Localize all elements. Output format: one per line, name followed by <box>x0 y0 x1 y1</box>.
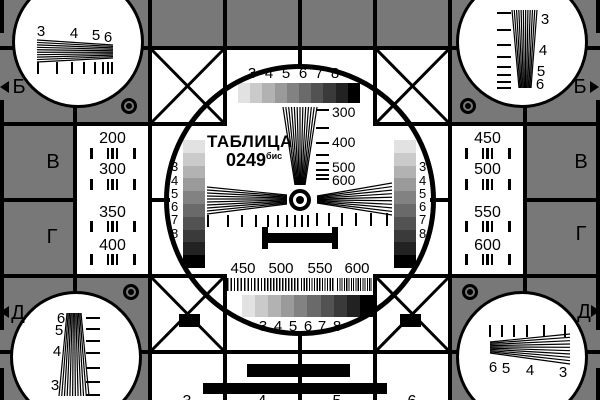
column-digit-top: 4 <box>258 0 267 3</box>
corner-circle-top-left <box>12 0 144 108</box>
burst-marks <box>465 179 511 190</box>
row-letter-right: Г <box>576 224 587 244</box>
corner-circle-bottom-right <box>456 291 588 400</box>
left-frequency-panel: 200 300 350 400 <box>77 126 148 274</box>
right-edge-mark <box>596 100 600 330</box>
main-circle <box>164 64 436 336</box>
test-card: ТАБЛИЦА 0249бис 3 4 5 6 7 8 300 400 500 … <box>0 0 600 400</box>
right-edge-mark <box>596 368 600 400</box>
corner-wedge-label: 3 <box>37 24 45 39</box>
row-marker-arrow <box>0 81 9 93</box>
corner-wedge-label: 5 <box>55 323 63 338</box>
column-digit-top: 5 <box>333 0 342 3</box>
alignment-target-dot <box>465 103 471 109</box>
black-patch <box>400 314 421 327</box>
bottom-bar-short <box>247 364 350 377</box>
corner-wedge-label: 4 <box>526 363 534 378</box>
column-digit-bottom: 4 <box>258 394 267 400</box>
corner-wedge-label: 4 <box>539 43 547 58</box>
frequency-value: 500 <box>474 162 501 178</box>
corner-wedge-label: 6 <box>536 77 544 92</box>
row-marker-arrow <box>591 305 600 317</box>
burst-marks <box>465 254 511 265</box>
left-edge-mark <box>0 100 4 330</box>
corner-wedge-label: 3 <box>541 12 549 27</box>
corner-wedge-label: 3 <box>559 365 567 380</box>
column-digit-top: 3 <box>183 0 192 3</box>
frequency-value: 550 <box>474 205 501 221</box>
right-frequency-panel: 450 500 550 600 <box>452 126 523 274</box>
burst-marks <box>90 179 136 190</box>
corner-wedge-label: 5 <box>92 28 100 43</box>
right-edge-mark <box>596 0 600 33</box>
burst-marks <box>90 221 136 232</box>
frequency-value: 450 <box>474 131 501 147</box>
corner-circle-top-right <box>456 0 588 108</box>
column-digit-bottom: 5 <box>333 394 342 400</box>
alignment-target-dot <box>467 289 473 295</box>
burst-marks <box>90 254 136 265</box>
row-letter-left: В <box>46 152 59 172</box>
corner-wedge-label: 4 <box>53 344 61 359</box>
left-edge-mark <box>0 0 4 33</box>
row-letter-left: Г <box>47 227 58 247</box>
corner-wedge-label: 6 <box>489 360 497 375</box>
black-patch <box>179 314 200 327</box>
row-marker-arrow <box>590 81 599 93</box>
column-digit-bottom: 3 <box>183 394 192 400</box>
frequency-value: 400 <box>99 238 126 254</box>
frequency-value: 300 <box>99 162 126 178</box>
corner-wedge-label: 3 <box>51 378 59 393</box>
corner-wedge-label: 4 <box>70 26 78 41</box>
alignment-target-dot <box>126 103 132 109</box>
burst-marks <box>465 148 511 159</box>
burst-marks <box>90 148 136 159</box>
bottom-bar-long <box>203 383 387 394</box>
column-digit-top: 6 <box>408 0 417 3</box>
left-edge-mark <box>0 368 4 400</box>
corner-wedge-label: 5 <box>502 361 510 376</box>
alignment-target-dot <box>128 289 134 295</box>
corner-circle-bottom-left <box>10 291 142 400</box>
frequency-value: 200 <box>99 131 126 147</box>
row-letter-right: Б <box>573 77 586 97</box>
frequency-value: 600 <box>474 238 501 254</box>
frequency-value: 350 <box>99 205 126 221</box>
row-letter-left: Д <box>11 303 25 323</box>
row-letter-right: В <box>574 152 587 172</box>
corner-wedge-label: 6 <box>104 30 112 45</box>
column-digit-bottom: 6 <box>408 394 417 400</box>
row-letter-left: Б <box>12 77 25 97</box>
row-marker-arrow <box>0 306 9 318</box>
row-letter-right: Д <box>577 302 591 322</box>
burst-marks <box>465 221 511 232</box>
